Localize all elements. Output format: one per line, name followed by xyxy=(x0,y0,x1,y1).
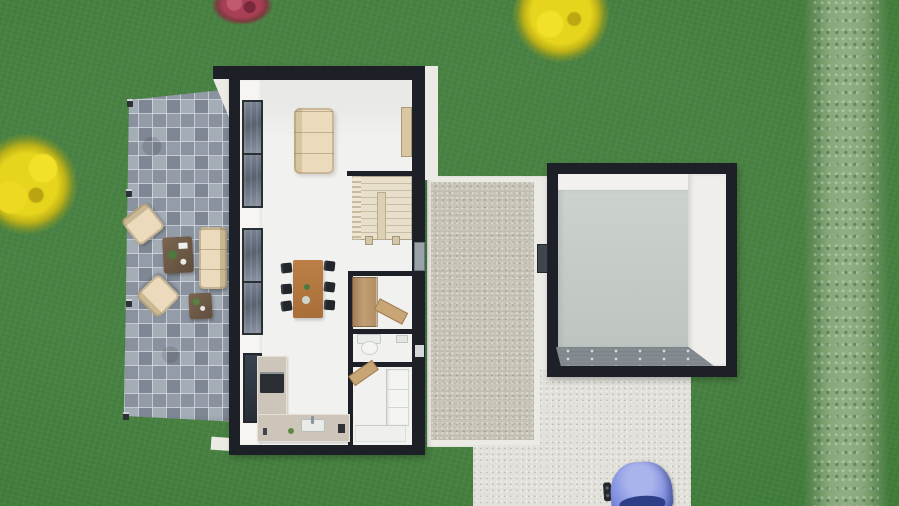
bowl xyxy=(302,296,310,304)
plant xyxy=(304,284,310,290)
wall-opening xyxy=(415,345,424,357)
dining-chair[interactable] xyxy=(281,284,293,295)
dining-chair[interactable] xyxy=(280,300,292,311)
dining-table[interactable] xyxy=(293,260,323,318)
car[interactable] xyxy=(600,455,679,506)
wardrobe[interactable] xyxy=(352,277,378,327)
patio-lamp[interactable] xyxy=(127,99,133,107)
dining-chair[interactable] xyxy=(281,262,293,273)
wc-shelf xyxy=(396,335,408,343)
small-appliance xyxy=(338,424,345,433)
plant xyxy=(168,250,177,259)
newel-post xyxy=(392,236,400,245)
dining-chair[interactable] xyxy=(324,260,336,271)
plant xyxy=(193,298,200,305)
patio-lamp[interactable] xyxy=(126,299,132,307)
sideboard[interactable] xyxy=(401,107,412,157)
cup xyxy=(180,259,186,265)
stair-treads xyxy=(361,176,412,240)
window[interactable] xyxy=(242,100,263,155)
plant xyxy=(288,428,294,434)
papers xyxy=(178,242,187,248)
garage-door-mat[interactable] xyxy=(556,347,714,366)
outdoor-sofa[interactable] xyxy=(199,227,227,289)
interior-wall xyxy=(351,362,412,367)
shower[interactable] xyxy=(355,425,406,442)
garage-floor xyxy=(558,190,688,348)
faucet xyxy=(311,416,314,424)
house-side-door[interactable] xyxy=(414,242,425,271)
gravel-courtyard[interactable] xyxy=(431,182,534,440)
garage-side-door[interactable] xyxy=(537,244,548,273)
bathroom-vanity[interactable] xyxy=(386,369,409,426)
toilet-bowl xyxy=(361,341,378,355)
vanity-seam xyxy=(386,407,409,408)
floorplan-scene xyxy=(0,0,899,506)
interior-wall xyxy=(348,271,412,276)
side-table[interactable] xyxy=(188,292,212,319)
patio-lamp[interactable] xyxy=(123,412,129,420)
staircase[interactable] xyxy=(352,176,412,240)
oven[interactable] xyxy=(260,372,284,393)
garage-east-wall-face xyxy=(688,174,726,366)
hedge[interactable] xyxy=(803,0,889,506)
patio-lamp[interactable] xyxy=(126,189,132,197)
hedge-texture xyxy=(813,0,879,506)
sofa[interactable] xyxy=(294,108,334,174)
vanity-seam xyxy=(386,389,409,390)
coffee-table[interactable] xyxy=(162,236,194,274)
dining-chair[interactable] xyxy=(324,300,336,311)
newel-post xyxy=(365,236,373,245)
dining-chair[interactable] xyxy=(323,281,335,292)
stair-railing xyxy=(352,178,361,238)
stair-center-rail xyxy=(377,192,386,240)
window[interactable] xyxy=(242,153,263,208)
house-east-exterior xyxy=(425,66,438,180)
bottle xyxy=(263,428,267,435)
window[interactable] xyxy=(242,281,263,335)
window[interactable] xyxy=(242,228,263,283)
cup xyxy=(200,306,205,311)
